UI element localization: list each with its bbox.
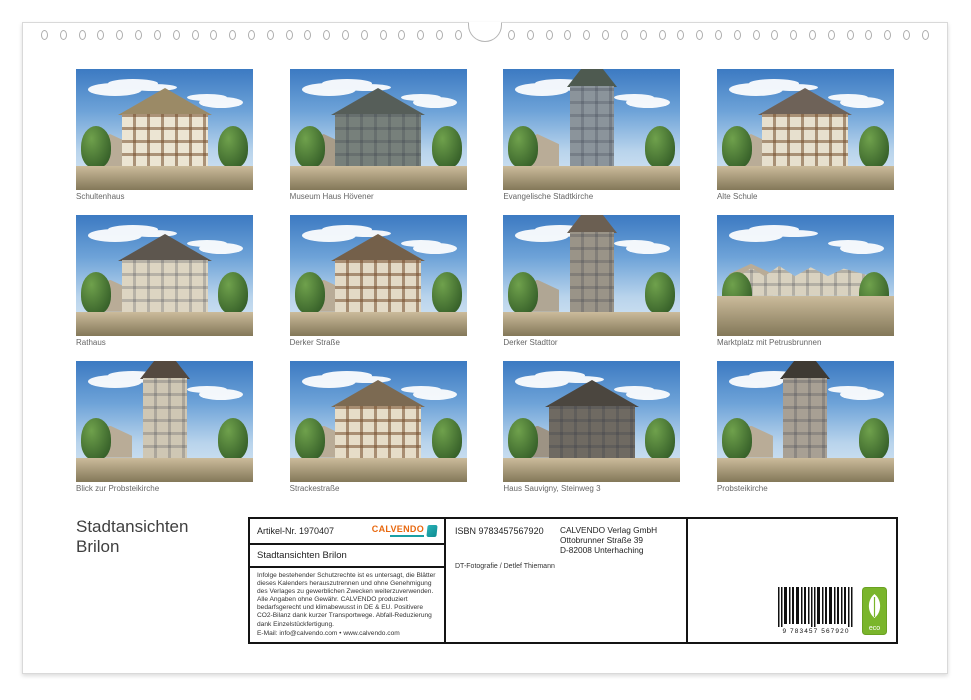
binding-holes-left — [41, 30, 462, 40]
product-title: Stadtansichten Brilon — [257, 550, 347, 561]
photo-caption: Derker Stadttor — [503, 339, 680, 348]
calvendo-logo-text-block: CALVENDO — [372, 525, 424, 537]
binding-hole-icon — [60, 30, 67, 40]
gallery-item: Marktplatz mit Petrusbrunnen — [717, 215, 894, 348]
tree-shape — [295, 418, 325, 460]
photo-image — [76, 69, 253, 190]
photo-image — [717, 361, 894, 482]
eco-leaf-icon: eco — [862, 587, 887, 635]
binding-hole-icon — [267, 30, 274, 40]
page-title-line2: Brilon — [76, 537, 188, 557]
roof-shape — [545, 380, 639, 407]
tree-shape — [508, 272, 538, 314]
tree-shape — [295, 126, 325, 168]
photo-caption: Marktplatz mit Petrusbrunnen — [717, 339, 894, 348]
calvendo-logo-icon — [426, 525, 437, 537]
publisher-address: CALVENDO Verlag GmbH Ottobrunner Straße … — [560, 526, 657, 555]
eco-label: eco — [862, 587, 887, 635]
binding-hole-icon — [116, 30, 123, 40]
building-shape — [335, 114, 421, 166]
binding-hole-icon — [323, 30, 330, 40]
building-shape — [570, 232, 614, 312]
svg-text:eco: eco — [869, 625, 880, 632]
binding-hole-icon — [828, 30, 835, 40]
binding-hole-icon — [564, 30, 571, 40]
roof-shape — [331, 88, 425, 115]
binding-hole-icon — [398, 30, 405, 40]
ground-shape — [290, 458, 467, 482]
gallery-item: Rathaus — [76, 215, 253, 348]
binding-hole-icon — [621, 30, 628, 40]
binding-hole-icon — [79, 30, 86, 40]
binding-hole-icon — [922, 30, 929, 40]
ground-shape — [76, 458, 253, 482]
binding-holes-right — [508, 30, 929, 40]
gallery-item: Derker Stadttor — [503, 215, 680, 348]
calendar-back-page: Schultenhaus Museum Haus Hövener Evangel… — [22, 22, 948, 674]
ground-shape — [76, 166, 253, 190]
binding-hole-icon — [677, 30, 684, 40]
cloud-shape — [840, 389, 884, 400]
photo-caption: Blick zur Probsteikirche — [76, 485, 253, 494]
calvendo-logo: CALVENDO — [372, 525, 437, 537]
tree-shape — [859, 418, 889, 460]
cloud-shape — [515, 83, 569, 96]
cloud-shape — [626, 97, 670, 108]
legal-email: E-Mail: info@calvendo.com • www.calvendo… — [257, 630, 437, 638]
binding-hole-icon — [903, 30, 910, 40]
binding-hole-icon — [753, 30, 760, 40]
tree-shape — [508, 418, 538, 460]
info-box-middle-column: ISBN 9783457567920 CALVENDO Verlag GmbH … — [446, 519, 688, 642]
gallery-item: Blick zur Probsteikirche — [76, 361, 253, 494]
building-shape — [122, 260, 208, 312]
photo-image — [290, 361, 467, 482]
building-shape — [570, 86, 614, 166]
binding-hole-icon — [41, 30, 48, 40]
ground-shape — [503, 312, 680, 336]
photo-caption: Probsteikirche — [717, 485, 894, 494]
gallery-item: Museum Haus Hövener — [290, 69, 467, 202]
gallery-item: Evangelische Stadtkirche — [503, 69, 680, 202]
binding-hole-icon — [154, 30, 161, 40]
calvendo-logo-tagline-bar — [390, 535, 424, 537]
tree-shape — [432, 126, 462, 168]
binding-hole-icon — [97, 30, 104, 40]
photo-caption: Museum Haus Hövener — [290, 193, 467, 202]
ground-shape — [503, 458, 680, 482]
barcode-bars-icon — [777, 587, 855, 627]
ground-shape — [290, 166, 467, 190]
cloud-shape — [515, 229, 569, 242]
gallery-item: Alte Schule — [717, 69, 894, 202]
info-box-right-column: 9 783457 567920 eco — [688, 519, 896, 642]
binding-hole-icon — [342, 30, 349, 40]
roof-shape — [118, 234, 212, 261]
building-shape — [335, 406, 421, 458]
roof-shape — [567, 69, 617, 87]
photo-caption: Rathaus — [76, 339, 253, 348]
binding-hole-icon — [173, 30, 180, 40]
gallery-item: Haus Sauvigny, Steinweg 3 — [503, 361, 680, 494]
ground-shape — [290, 312, 467, 336]
cloud-shape — [729, 229, 783, 242]
ground-shape — [76, 312, 253, 336]
photo-caption: Haus Sauvigny, Steinweg 3 — [503, 485, 680, 494]
binding-hole-icon — [640, 30, 647, 40]
binding-hole-icon — [884, 30, 891, 40]
binding-hole-icon — [455, 30, 462, 40]
ground-shape — [717, 166, 894, 190]
binding-hole-icon — [809, 30, 816, 40]
tree-shape — [218, 126, 248, 168]
calvendo-logo-wordmark: CALVENDO — [372, 525, 424, 534]
building-shape — [143, 378, 187, 458]
tree-shape — [432, 418, 462, 460]
binding-hole-icon — [527, 30, 534, 40]
photo-caption: Schultenhaus — [76, 193, 253, 202]
cloud-shape — [199, 389, 243, 400]
photo-image — [717, 215, 894, 336]
binding-hole-icon — [696, 30, 703, 40]
gallery-item: Derker Straße — [290, 215, 467, 348]
publisher-info-box: Artikel-Nr. 1970407 CALVENDO Stadtansich… — [248, 517, 898, 644]
building-shape — [335, 260, 421, 312]
photo-image — [76, 215, 253, 336]
photo-image — [76, 361, 253, 482]
binding-hole-icon — [135, 30, 142, 40]
photo-caption: Derker Straße — [290, 339, 467, 348]
ground-shape — [717, 296, 894, 336]
article-number-row: Artikel-Nr. 1970407 CALVENDO — [250, 519, 444, 545]
binding-hole-icon — [734, 30, 741, 40]
tree-shape — [218, 418, 248, 460]
gallery-item: Schultenhaus — [76, 69, 253, 202]
roof-shape — [567, 215, 617, 233]
building-shape — [783, 378, 827, 458]
legal-text: Infolge bestehender Schutzrechte ist es … — [257, 572, 437, 629]
tree-shape — [645, 126, 675, 168]
binding-hole-icon — [865, 30, 872, 40]
barcode-number: 9 783457 567920 — [782, 628, 849, 635]
binding-hole-icon — [229, 30, 236, 40]
roof-shape — [118, 88, 212, 115]
tree-shape — [218, 272, 248, 314]
binding-hole-icon — [659, 30, 666, 40]
tree-shape — [81, 272, 111, 314]
ean-barcode: 9 783457 567920 — [777, 587, 855, 635]
legal-text-block: Infolge bestehender Schutzrechte ist es … — [250, 568, 444, 642]
isbn-row: ISBN 9783457567920 CALVENDO Verlag GmbH … — [455, 526, 677, 555]
product-title-row: Stadtansichten Brilon — [250, 545, 444, 568]
binding-hole-icon — [771, 30, 778, 40]
photographer-credit: DT-Fotografie / Detlef Thiemann — [455, 563, 555, 570]
photo-caption: Alte Schule — [717, 193, 894, 202]
binding-hole-icon — [380, 30, 387, 40]
cloud-shape — [729, 375, 783, 388]
cloud-shape — [88, 375, 142, 388]
cloud-shape — [840, 243, 884, 254]
page-title: Stadtansichten Brilon — [76, 517, 188, 557]
roof-shape — [780, 361, 830, 379]
tree-shape — [722, 126, 752, 168]
binding-hole-icon — [436, 30, 443, 40]
tree-shape — [645, 418, 675, 460]
photo-image — [503, 69, 680, 190]
binding-hole-icon — [286, 30, 293, 40]
ground-shape — [503, 166, 680, 190]
tree-shape — [432, 272, 462, 314]
binding-hole-icon — [602, 30, 609, 40]
photo-gallery: Schultenhaus Museum Haus Hövener Evangel… — [76, 69, 894, 493]
isbn-number: ISBN 9783457567920 — [455, 526, 560, 555]
binding-hole-icon — [508, 30, 515, 40]
photo-image — [717, 69, 894, 190]
ground-shape — [717, 458, 894, 482]
info-box-left-column: Artikel-Nr. 1970407 CALVENDO Stadtansich… — [250, 519, 446, 642]
tree-shape — [295, 272, 325, 314]
tree-shape — [81, 418, 111, 460]
binding-hole-icon — [210, 30, 217, 40]
photo-image — [503, 215, 680, 336]
article-number: Artikel-Nr. 1970407 — [257, 526, 334, 536]
binding-hole-icon — [361, 30, 368, 40]
photo-caption: Strackestraße — [290, 485, 467, 494]
tree-shape — [81, 126, 111, 168]
binding-hole-icon — [417, 30, 424, 40]
tree-shape — [508, 126, 538, 168]
barcode-block: 9 783457 567920 eco — [777, 587, 887, 635]
binding-hole-icon — [248, 30, 255, 40]
building-shape — [122, 114, 208, 166]
binding-hole-icon — [790, 30, 797, 40]
building-shape — [762, 114, 848, 166]
tree-shape — [645, 272, 675, 314]
photo-image — [290, 215, 467, 336]
binding-hole-icon — [192, 30, 199, 40]
binding-hole-icon — [546, 30, 553, 40]
gallery-item: Strackestraße — [290, 361, 467, 494]
binding-hole-icon — [847, 30, 854, 40]
roof-shape — [331, 380, 425, 407]
photo-image — [290, 69, 467, 190]
photo-caption: Evangelische Stadtkirche — [503, 193, 680, 202]
roof-shape — [758, 88, 852, 115]
tree-shape — [859, 126, 889, 168]
binding-hole-icon — [715, 30, 722, 40]
building-shape — [549, 406, 635, 458]
binding-hole-icon — [583, 30, 590, 40]
photo-image — [503, 361, 680, 482]
gallery-item: Probsteikirche — [717, 361, 894, 494]
tree-shape — [722, 418, 752, 460]
building-shape — [739, 262, 871, 296]
cloud-shape — [626, 243, 670, 254]
binding-hole-icon — [304, 30, 311, 40]
page-title-line1: Stadtansichten — [76, 517, 188, 537]
roof-shape — [140, 361, 190, 379]
roof-shape — [331, 234, 425, 261]
